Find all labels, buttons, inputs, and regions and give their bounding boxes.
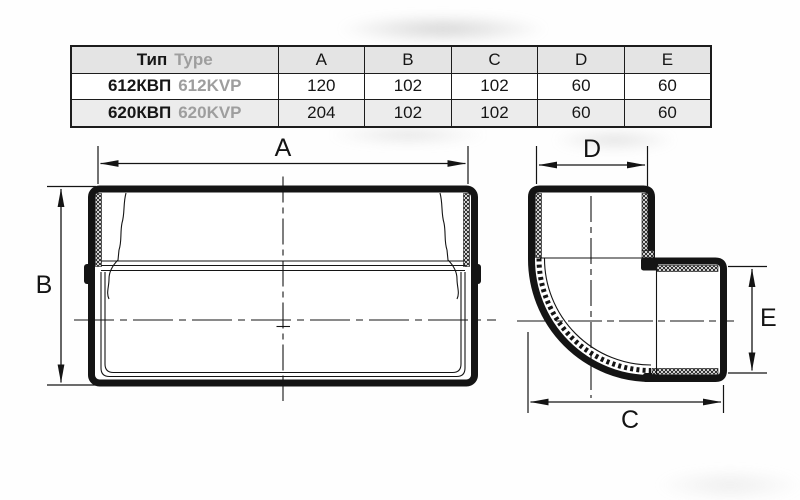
technical-drawings: A B D <box>0 0 800 500</box>
hatch-strip-top <box>657 266 718 272</box>
straight-fitting-drawing: A B <box>36 134 496 401</box>
hatch-strip-right <box>464 194 470 267</box>
dim-label-C: C <box>621 406 639 434</box>
hatch-strip-bottom <box>652 369 718 375</box>
flange-step-left <box>84 264 92 284</box>
dim-label-A: A <box>275 134 292 162</box>
hatch-strip-right <box>642 194 648 251</box>
hatch-strip-left <box>96 194 102 267</box>
junction-step <box>641 258 658 271</box>
dim-label-D: D <box>583 135 601 163</box>
dim-label-B: B <box>36 271 53 299</box>
flange-step-right <box>473 264 481 284</box>
hatch-strip-left <box>536 194 542 258</box>
technical-sheet: ТипType A B C D E 612КВП612KVP 120 102 1… <box>0 0 800 500</box>
elbow-body-outline <box>531 189 723 379</box>
dim-label-E: E <box>760 304 777 332</box>
elbow-fitting-drawing: D E C <box>517 135 777 434</box>
